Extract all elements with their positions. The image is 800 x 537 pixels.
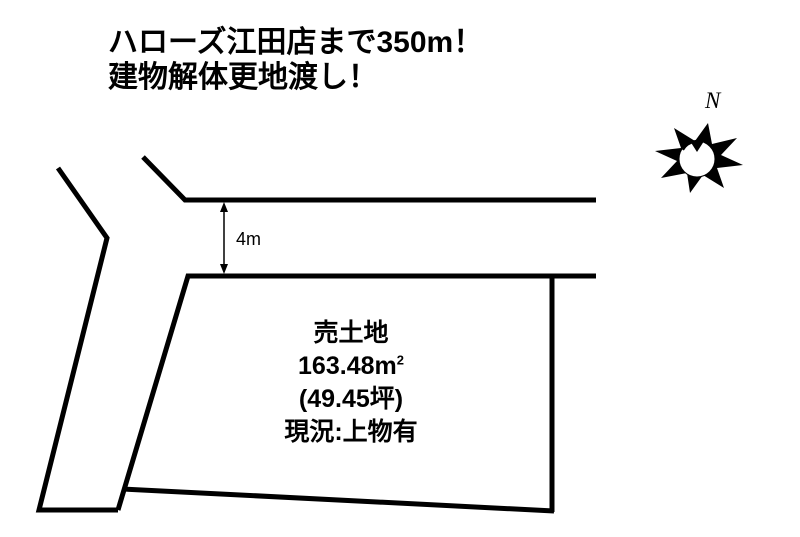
headline: ハローズ江田店まで350m！ 建物解体更地渡し！: [108, 25, 483, 95]
plot-area-value: 163.48: [298, 352, 374, 380]
plot-area-tsubo: (49.45坪): [211, 383, 491, 416]
dimension-arrow-down-head-icon: [220, 264, 228, 274]
plot-south-boundary-line: [123, 489, 554, 511]
left-road-boundary-line: [39, 168, 118, 510]
road-width-dimension-arrow: [220, 202, 228, 274]
plot-area-exponent: 2: [397, 353, 404, 368]
upper-road-north-edge-line: [143, 157, 596, 200]
plot-title: 売土地: [211, 317, 491, 350]
plot-area-unit: m: [375, 352, 397, 380]
plot-area-sqm: 163.48m2: [211, 350, 491, 383]
plot-label-block: 売土地 163.48m2 (49.45坪) 現況:上物有: [211, 317, 491, 449]
plot-status: 現況:上物有: [211, 416, 491, 449]
headline-line-2: 建物解体更地渡し！: [108, 60, 483, 95]
headline-line-1: ハローズ江田店まで350m！: [108, 25, 483, 60]
dimension-arrow-up-head-icon: [220, 202, 228, 212]
compass-north-icon: [655, 123, 743, 193]
land-plot-diagram: ハローズ江田店まで350m！ 建物解体更地渡し！ 4m N 売土地 163.48…: [0, 0, 800, 537]
road-width-label: 4m: [236, 229, 261, 250]
compass-north-label: N: [705, 88, 720, 114]
